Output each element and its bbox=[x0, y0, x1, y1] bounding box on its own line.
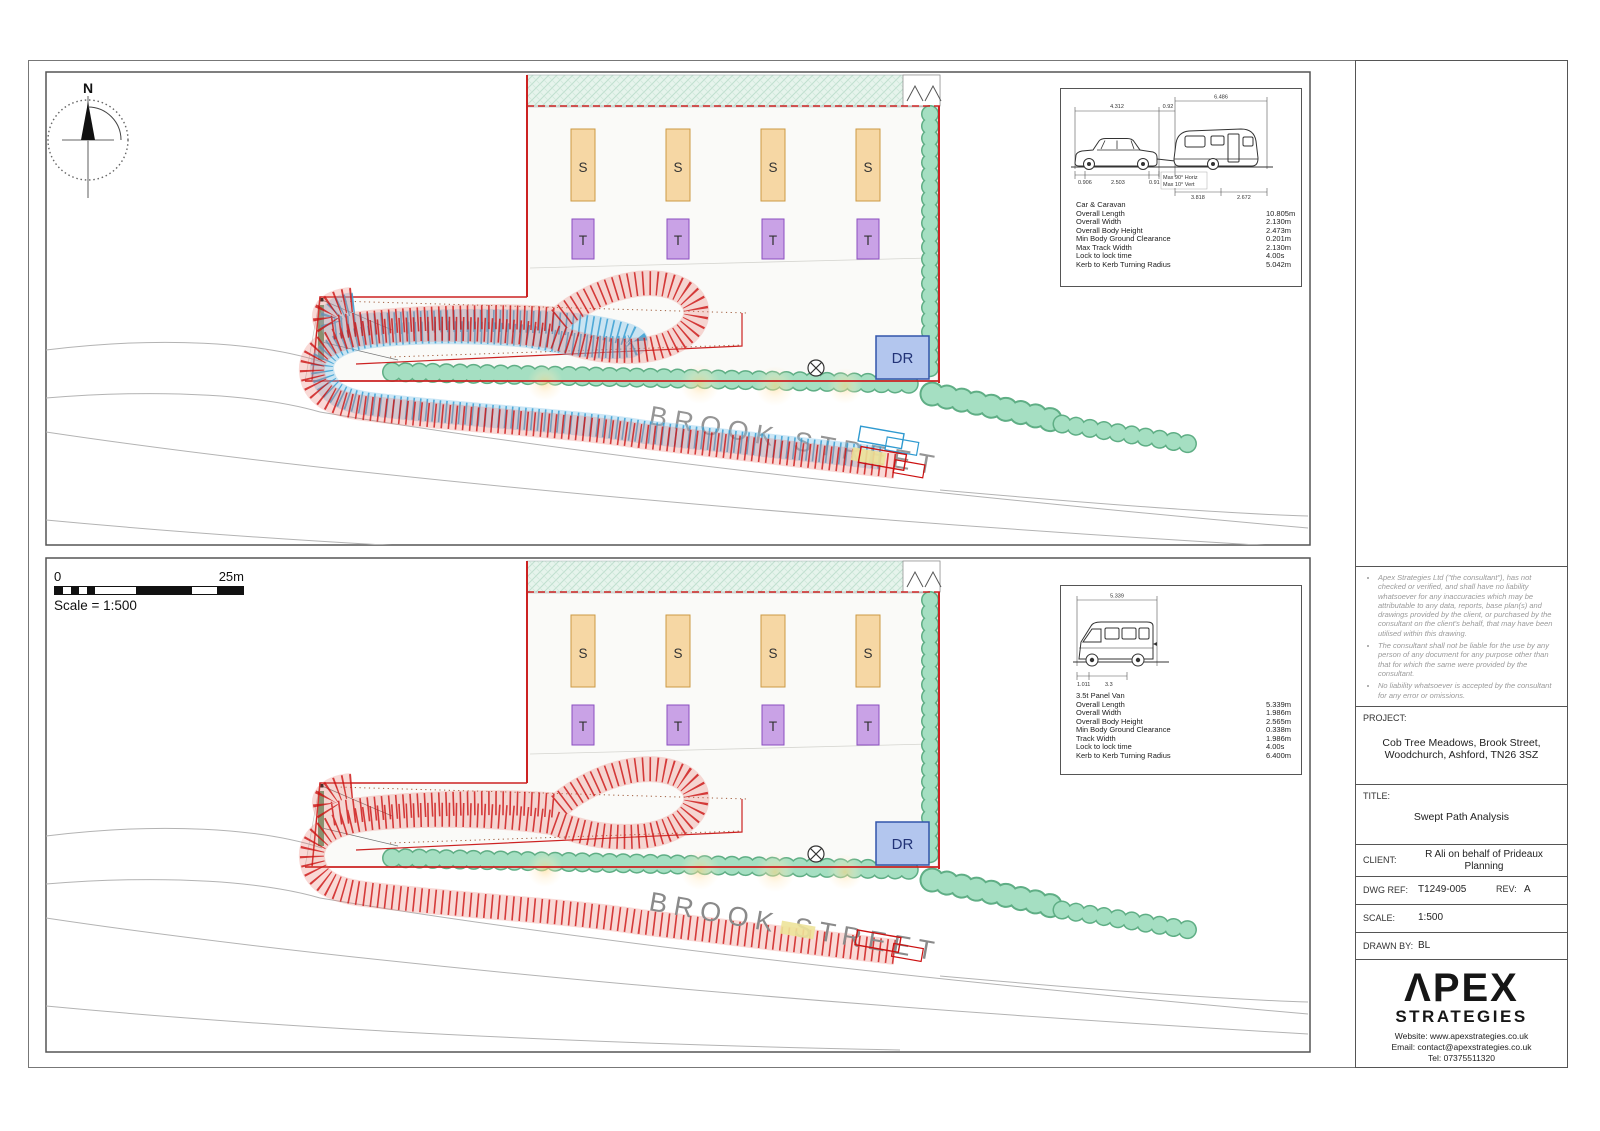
van-profile-drawing: 5.339 1.011 3.3 bbox=[1061, 586, 1303, 690]
note-item: Apex Strategies Ltd ("the consultant"), … bbox=[1378, 573, 1559, 638]
client-value: R Ali on behalf of Prideaux Planning bbox=[1411, 849, 1557, 873]
drawn-by-section: DRAWN BY: BL bbox=[1356, 932, 1567, 959]
caravan-spec-table: Car & Caravan Overall Length10.805m Over… bbox=[1061, 201, 1301, 269]
svg-text:Max 90° Horiz: Max 90° Horiz bbox=[1163, 175, 1198, 181]
svg-text:0.92: 0.92 bbox=[1163, 104, 1174, 110]
dwg-ref-section: DWG REF: T1249-005 REV: A bbox=[1356, 876, 1567, 904]
scale-start: 0 bbox=[54, 569, 61, 584]
note-item: No liability whatsoever is accepted by t… bbox=[1378, 681, 1559, 700]
svg-text:4.312: 4.312 bbox=[1110, 104, 1124, 110]
disclaimer-notes: Apex Strategies Ltd ("the consultant"), … bbox=[1356, 566, 1567, 706]
drawn-by-label: DRAWN BY: bbox=[1363, 941, 1413, 951]
rev-label: REV: bbox=[1496, 884, 1517, 894]
svg-text:3.3: 3.3 bbox=[1105, 682, 1113, 688]
dwg-ref-value: T1249-005 bbox=[1418, 884, 1466, 895]
svg-text:5.339: 5.339 bbox=[1110, 594, 1124, 600]
svg-text:0.906: 0.906 bbox=[1078, 180, 1092, 186]
company-email: Email: contact@apexstrategies.co.uk bbox=[1356, 1042, 1567, 1053]
scale-bar: 0 25m Scale = 1:500 bbox=[54, 569, 244, 613]
drawing-sheet: BROOK STREET bbox=[0, 0, 1600, 1131]
company-logo-section: ΛPEX STRATEGIES Website: www.apexstrateg… bbox=[1356, 959, 1567, 1069]
title-label: TITLE: bbox=[1363, 791, 1390, 801]
van-spec-table: 3.5t Panel Van Overall Length5.339m Over… bbox=[1061, 692, 1301, 760]
project-section: PROJECT: Cob Tree Meadows, Brook Street,… bbox=[1356, 706, 1567, 784]
scale-end: 25m bbox=[219, 569, 244, 584]
scale-value: 1:500 bbox=[1418, 912, 1443, 923]
svg-text:0.91: 0.91 bbox=[1149, 180, 1160, 186]
svg-text:2.503: 2.503 bbox=[1111, 180, 1125, 186]
title-block: Apex Strategies Ltd ("the consultant"), … bbox=[1355, 60, 1568, 1068]
scale-caption: Scale = 1:500 bbox=[54, 598, 244, 613]
svg-text:6.486: 6.486 bbox=[1214, 95, 1228, 101]
client-section: CLIENT: R Ali on behalf of Prideaux Plan… bbox=[1356, 844, 1567, 876]
vehicle-spec-box-van: 5.339 1.011 3.3 3.5t Panel Van Overall L… bbox=[1060, 585, 1302, 775]
company-website: Website: www.apexstrategies.co.uk bbox=[1356, 1031, 1567, 1042]
svg-text:1.011: 1.011 bbox=[1077, 682, 1090, 688]
scale-section: SCALE: 1:500 bbox=[1356, 904, 1567, 932]
caravan-profile-drawing: 4.312 0.92 6.486 Max 90° Horiz Max 10° V… bbox=[1061, 89, 1303, 201]
svg-text:Max 10° Vert: Max 10° Vert bbox=[1163, 182, 1195, 188]
note-item: The consultant shall not be liable for t… bbox=[1378, 641, 1559, 678]
dwg-ref-label: DWG REF: bbox=[1363, 885, 1408, 895]
title-section: TITLE: Swept Path Analysis bbox=[1356, 784, 1567, 844]
scale-bar-graphic bbox=[54, 586, 244, 595]
client-label: CLIENT: bbox=[1363, 855, 1397, 865]
drawing-title: Swept Path Analysis bbox=[1356, 811, 1567, 823]
project-value: Cob Tree Meadows, Brook Street, Woodchur… bbox=[1356, 737, 1567, 761]
sheet-border bbox=[28, 60, 1568, 1068]
scale-label: SCALE: bbox=[1363, 913, 1395, 923]
company-logo-subtitle: STRATEGIES bbox=[1356, 1008, 1567, 1026]
rev-value: A bbox=[1524, 884, 1531, 895]
project-label: PROJECT: bbox=[1363, 713, 1407, 723]
company-logo: ΛPEX bbox=[1356, 968, 1567, 1008]
company-phone: Tel: 07375511320 bbox=[1356, 1053, 1567, 1064]
vehicle-spec-box-caravan: 4.312 0.92 6.486 Max 90° Horiz Max 10° V… bbox=[1060, 88, 1302, 287]
title-block-spacer bbox=[1356, 61, 1567, 566]
drawn-by-value: BL bbox=[1418, 940, 1430, 951]
